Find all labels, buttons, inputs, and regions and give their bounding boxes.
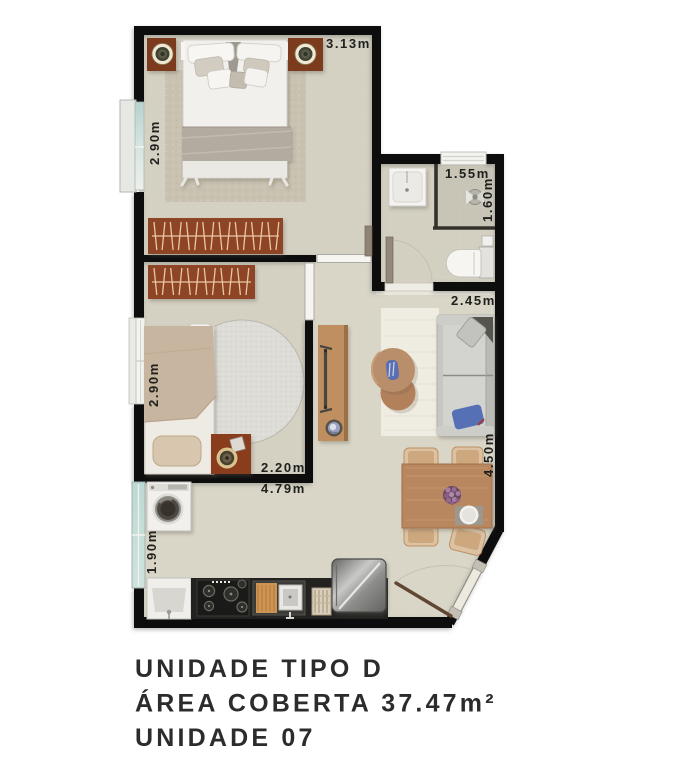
svg-text:4.79m: 4.79m xyxy=(261,481,306,496)
svg-text:2.90m: 2.90m xyxy=(146,362,161,407)
svg-text:UNIDADE TIPO D: UNIDADE TIPO D xyxy=(135,655,384,683)
svg-text:4.50m: 4.50m xyxy=(481,432,496,477)
svg-text:2.45m: 2.45m xyxy=(451,293,496,308)
svg-text:2.90m: 2.90m xyxy=(147,120,162,165)
svg-text:UNIDADE 07: UNIDADE 07 xyxy=(135,724,316,752)
svg-text:ÁREA COBERTA 37.47m²: ÁREA COBERTA 37.47m² xyxy=(135,689,497,718)
svg-text:1.90m: 1.90m xyxy=(144,529,159,574)
svg-text:2.20m: 2.20m xyxy=(261,460,306,475)
svg-text:3.13m: 3.13m xyxy=(326,36,371,51)
svg-text:1.60m: 1.60m xyxy=(480,177,495,222)
